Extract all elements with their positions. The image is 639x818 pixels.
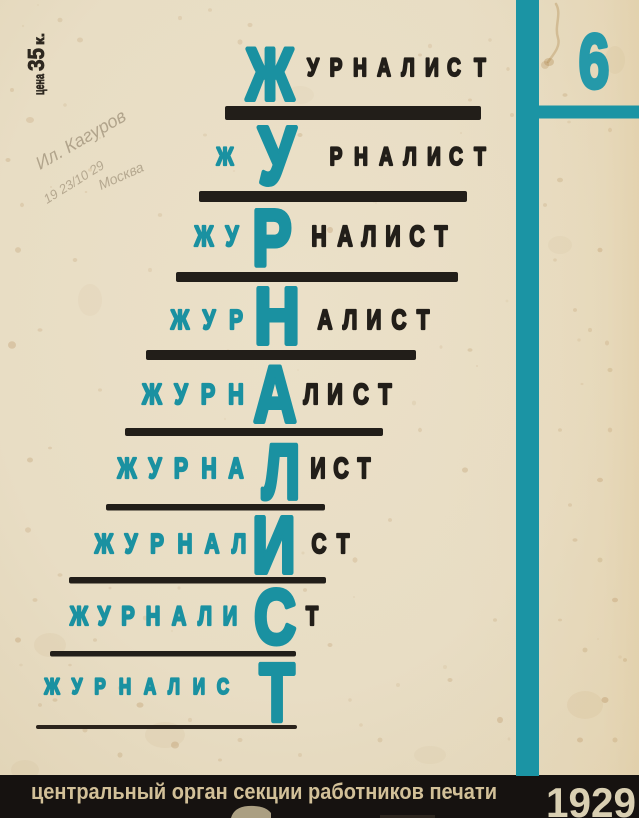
svg-text:Ж: Ж (216, 142, 235, 170)
svg-text:Н: Н (254, 273, 300, 362)
svg-text:А: А (228, 453, 243, 485)
svg-text:А: А (377, 53, 391, 81)
svg-text:Л: Л (303, 379, 318, 411)
svg-text:У: У (98, 601, 111, 632)
svg-text:С: С (353, 379, 369, 411)
svg-text:Н: Н (311, 221, 326, 253)
svg-text:Л: Л (168, 675, 180, 700)
svg-text:С: С (312, 529, 327, 560)
svg-text:1929: 1929 (546, 779, 636, 818)
svg-text:к.: к. (32, 33, 47, 45)
svg-text:И: И (193, 675, 205, 700)
svg-text:У: У (174, 379, 188, 411)
svg-text:Т: Т (378, 379, 392, 411)
svg-text:С: С (447, 53, 461, 81)
svg-text:Н: Н (228, 379, 244, 411)
svg-text:35: 35 (23, 48, 49, 71)
svg-text:У: У (125, 529, 139, 560)
svg-text:И: И (367, 305, 382, 336)
svg-text:Н: Н (353, 53, 367, 81)
svg-text:Т: Т (474, 142, 486, 170)
svg-text:С: С (333, 453, 348, 485)
svg-text:С: С (449, 142, 463, 170)
svg-text:Л: Л (198, 601, 212, 632)
svg-text:С: С (217, 675, 229, 700)
svg-text:Т: Т (259, 647, 294, 738)
svg-text:Л: Л (362, 221, 377, 253)
svg-text:Л: Л (401, 53, 414, 81)
svg-text:Н: Н (178, 529, 193, 560)
svg-text:У: У (258, 111, 297, 202)
svg-text:Ж: Ж (117, 453, 137, 485)
svg-text:А: А (172, 601, 187, 632)
svg-text:Ж: Ж (141, 379, 162, 411)
svg-text:Ж: Ж (94, 529, 114, 560)
svg-text:Н: Н (201, 453, 216, 485)
svg-text:Ж: Ж (43, 675, 60, 700)
svg-text:Р: Р (201, 379, 216, 411)
svg-text:А: А (318, 305, 333, 336)
svg-text:центральный орган секции работ: центральный орган секции работников печа… (31, 779, 497, 804)
svg-text:Р: Р (229, 305, 243, 336)
svg-text:А: А (337, 221, 352, 253)
svg-text:Т: Т (417, 305, 430, 336)
svg-text:А: А (205, 529, 220, 560)
svg-text:У: У (203, 305, 217, 336)
svg-text:У: У (148, 453, 162, 485)
svg-text:Т: Т (306, 601, 319, 632)
svg-text:6: 6 (579, 19, 610, 105)
svg-text:С: С (409, 221, 424, 253)
svg-text:Ж: Ж (245, 34, 294, 115)
svg-text:Н: Н (146, 601, 161, 632)
svg-text:Ж: Ж (170, 305, 190, 336)
svg-text:У: У (72, 675, 83, 700)
svg-text:У: У (225, 221, 239, 253)
svg-text:Л: Л (403, 142, 416, 170)
svg-text:У: У (307, 53, 320, 81)
svg-text:Т: Т (358, 453, 371, 485)
svg-text:Л: Л (343, 305, 358, 336)
svg-text:Ж: Ж (194, 221, 214, 253)
svg-text:И: И (427, 142, 441, 170)
svg-text:Р: Р (150, 529, 164, 560)
svg-text:И: И (327, 379, 343, 411)
svg-text:Т: Т (474, 53, 486, 81)
svg-text:Л: Л (232, 529, 247, 560)
svg-text:И: И (425, 53, 439, 81)
svg-text:цена: цена (32, 74, 47, 95)
svg-text:Р: Р (330, 142, 343, 170)
svg-text:А: А (144, 675, 156, 700)
svg-text:Р: Р (174, 453, 188, 485)
svg-text:Т: Т (435, 221, 448, 253)
svg-text:Н: Н (119, 675, 131, 700)
svg-text:С: С (392, 305, 407, 336)
svg-text:И: И (310, 453, 325, 485)
svg-text:А: А (379, 142, 393, 170)
svg-text:Р: Р (330, 53, 343, 81)
svg-text:И: И (223, 601, 238, 632)
svg-text:Р: Р (121, 601, 135, 632)
svg-text:А: А (254, 350, 297, 438)
svg-text:Н: Н (354, 142, 368, 170)
svg-text:Т: Т (337, 529, 350, 560)
svg-text:И: И (385, 221, 400, 253)
svg-text:Р: Р (252, 193, 291, 283)
svg-text:Р: Р (94, 675, 105, 700)
svg-text:Ж: Ж (69, 601, 89, 632)
